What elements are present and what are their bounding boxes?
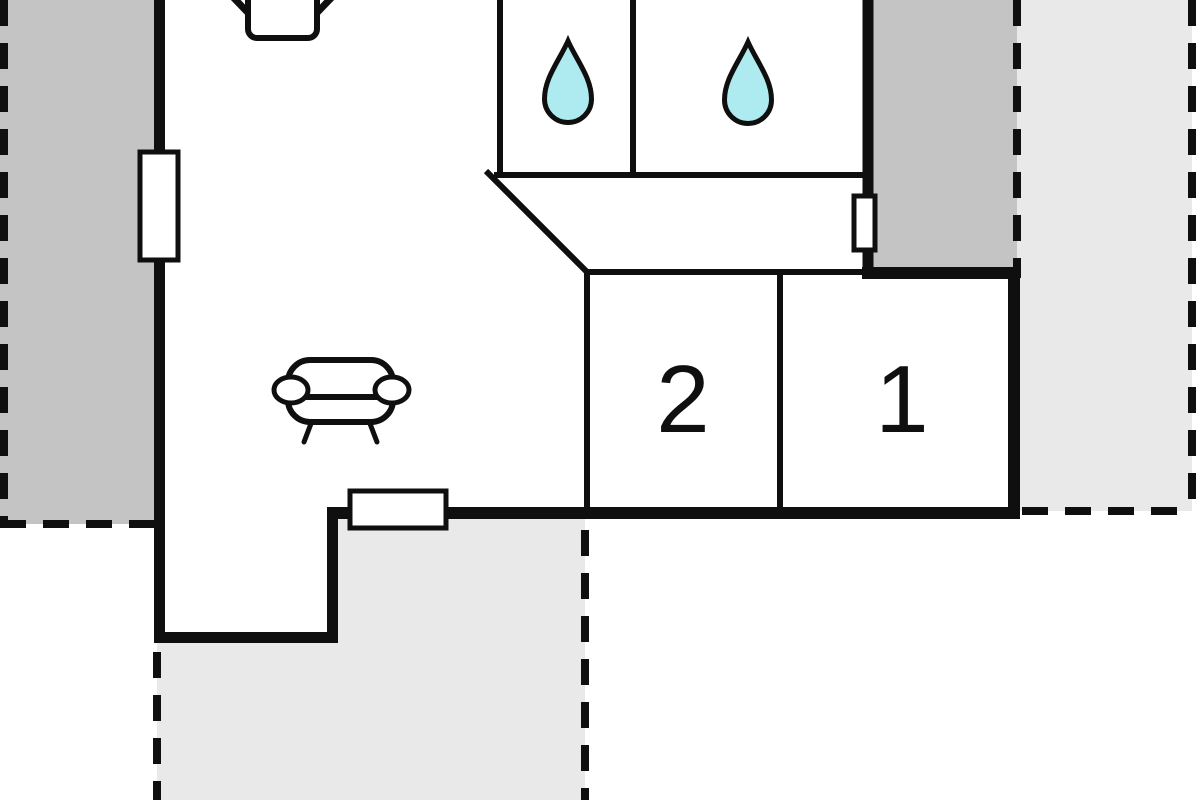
water-drop-icon-1 bbox=[545, 41, 592, 122]
water-drop-icon-2 bbox=[725, 42, 772, 123]
window-marker-right bbox=[854, 196, 875, 250]
tv-icon bbox=[230, 0, 335, 38]
bedroom-2-label: 2 bbox=[656, 352, 709, 448]
floor-plan-canvas: 2 1 bbox=[0, 0, 1200, 800]
terrace-right-area bbox=[1017, 0, 1192, 511]
wall-hall-diagonal bbox=[486, 171, 588, 273]
window-marker-bottom bbox=[350, 491, 446, 528]
window-marker-left bbox=[140, 152, 178, 260]
sofa-armrest-right bbox=[375, 377, 409, 403]
tv-body bbox=[248, 0, 317, 38]
sofa-armrest-left bbox=[274, 377, 308, 403]
floor-plan-drawing bbox=[0, 0, 1200, 800]
terrace-left-area bbox=[0, 0, 154, 524]
terrace-top-right-area bbox=[868, 0, 1017, 273]
sofa-icon bbox=[274, 360, 409, 442]
bedroom-1-label: 1 bbox=[875, 352, 928, 448]
terrace-bottom-area bbox=[157, 513, 585, 800]
